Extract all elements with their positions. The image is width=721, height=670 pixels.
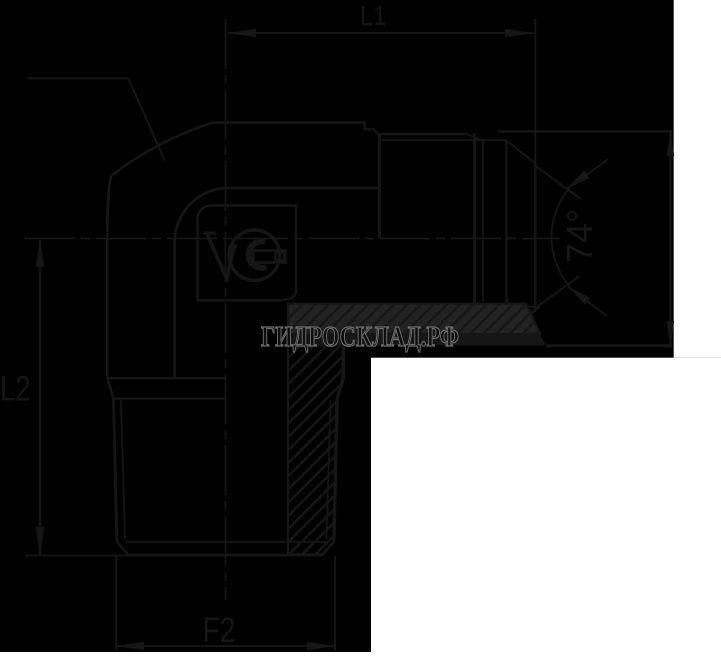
svg-text:ГИДРОСКЛАД.РФ: ГИДРОСКЛАД.РФ bbox=[261, 321, 459, 353]
svg-text:L1: L1 bbox=[360, 0, 387, 31]
svg-text:L2: L2 bbox=[0, 370, 31, 409]
svg-text:74°: 74° bbox=[559, 209, 600, 263]
svg-text:F2: F2 bbox=[203, 611, 236, 650]
